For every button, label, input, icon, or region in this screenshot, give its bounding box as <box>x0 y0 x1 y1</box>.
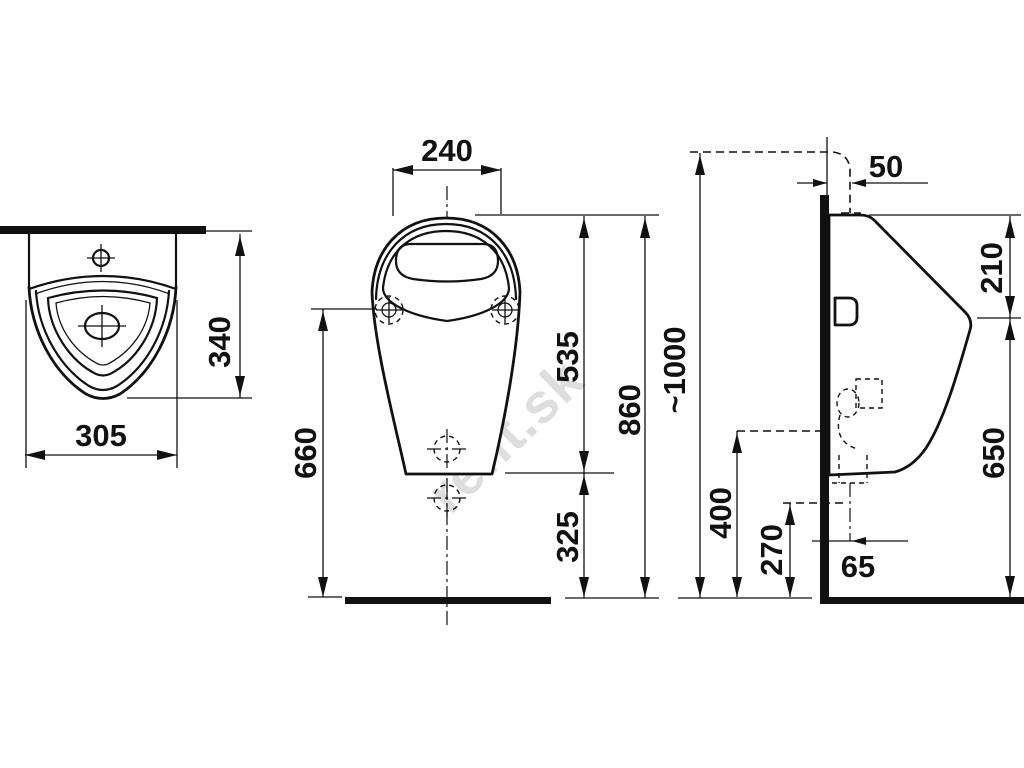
technical-drawing-page: rent.sk <box>0 0 1024 768</box>
dim-860-label: 860 <box>612 384 647 436</box>
floor-section-front-view <box>345 597 551 604</box>
side-view: 50 210 650 400 <box>690 137 1024 604</box>
dim-mount-height-660: 660 <box>288 309 377 597</box>
side-view-body-outline <box>829 215 971 475</box>
dim-trap-level-400: 400 <box>703 431 742 597</box>
dim-325-label: 325 <box>550 511 585 563</box>
supply-pipe-dashed <box>833 152 850 213</box>
dim-rim-to-bottom-535: 535 <box>550 216 589 473</box>
dim-340-label: 340 <box>202 316 237 368</box>
dim-400-label: 400 <box>703 487 738 539</box>
dim-front-height-650: 650 <box>976 318 1015 597</box>
dim-650-label: 650 <box>976 427 1011 479</box>
wall-section-top-view <box>0 226 206 234</box>
dim-outlet-level-270: 270 <box>754 503 795 597</box>
dim-50-label: 50 <box>869 149 903 184</box>
dim-supply-offset-50: 50 <box>797 137 928 195</box>
dim-240-label: 240 <box>421 133 473 168</box>
spreader-inlet <box>835 298 857 325</box>
floor-section-side-view <box>820 597 1024 604</box>
dim-supply-height-1000: ~1000 <box>657 153 705 598</box>
dim-1000-label: ~1000 <box>657 326 692 413</box>
dim-270-label: 270 <box>754 524 789 576</box>
supply-hole-crosshair <box>87 244 115 272</box>
dim-rim-width-240: 240 <box>393 133 501 216</box>
urinal-dimension-drawing: 305 340 <box>0 0 1024 768</box>
front-view: 240 660 535 <box>288 133 812 628</box>
dim-bottom-to-floor-325: 325 <box>550 473 589 598</box>
dim-rim-height-860: 860 <box>612 216 650 598</box>
dim-305-label: 305 <box>75 418 127 453</box>
dim-65-label: 65 <box>841 549 875 584</box>
top-view: 305 340 <box>0 226 252 468</box>
dim-660-label: 660 <box>288 427 323 479</box>
dim-210-label: 210 <box>974 242 1009 294</box>
dim-535-label: 535 <box>550 331 585 383</box>
outlet-position-lower <box>427 478 467 518</box>
